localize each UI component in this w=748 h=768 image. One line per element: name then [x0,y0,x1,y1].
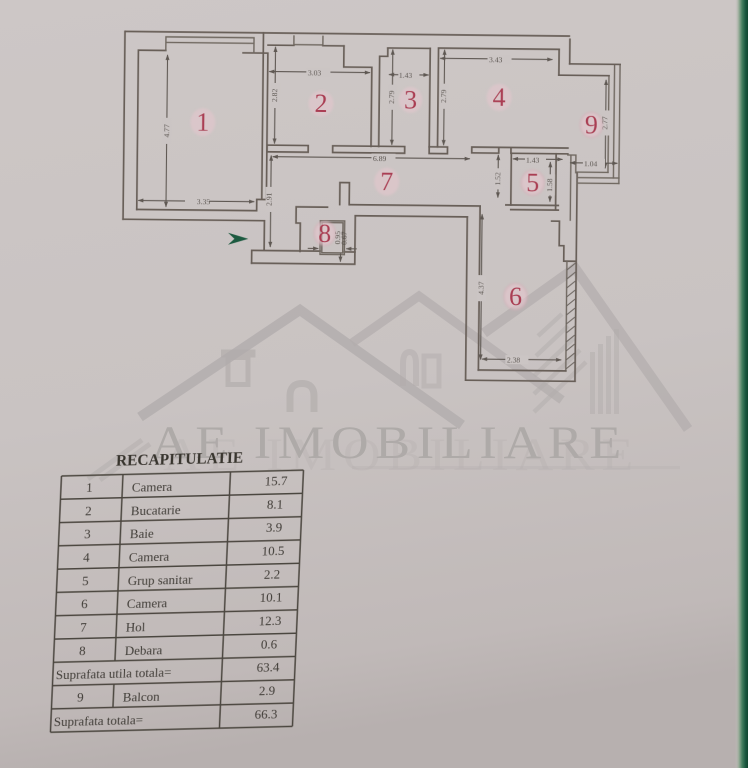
svg-text:1.58: 1.58 [545,178,554,192]
svg-text:2.79: 2.79 [439,89,448,103]
svg-text:1.43: 1.43 [526,156,540,165]
svg-text:2.2: 2.2 [264,566,281,581]
svg-text:Baie: Baie [130,526,155,542]
svg-text:10.5: 10.5 [261,543,284,559]
svg-text:4.77: 4.77 [162,124,171,138]
svg-text:Camera: Camera [129,549,170,565]
svg-text:10.1: 10.1 [259,590,282,606]
svg-text:Suprafata totala=: Suprafata totala= [54,712,144,729]
svg-text:0.6: 0.6 [261,636,278,651]
svg-text:2.82: 2.82 [270,89,279,103]
svg-text:6.89: 6.89 [373,154,387,163]
svg-text:3.43: 3.43 [489,55,503,64]
svg-text:3: 3 [404,85,417,114]
svg-text:12.3: 12.3 [258,613,281,629]
svg-text:2.79: 2.79 [387,90,396,104]
svg-text:4: 4 [83,550,91,565]
svg-text:8: 8 [318,219,331,248]
svg-text:9: 9 [585,110,598,139]
svg-text:5: 5 [526,168,539,197]
svg-text:Hol: Hol [126,619,147,634]
svg-text:3: 3 [84,526,91,541]
svg-text:7: 7 [80,620,88,635]
svg-text:3.03: 3.03 [308,68,322,77]
svg-text:1.43: 1.43 [399,71,413,80]
svg-text:Balcon: Balcon [123,689,161,705]
svg-text:8: 8 [79,643,86,658]
svg-text:1: 1 [86,480,93,495]
svg-text:RECAPITULATIE: RECAPITULATIE [116,450,244,470]
svg-text:2: 2 [85,503,92,518]
svg-text:Bucatarie: Bucatarie [131,502,182,518]
svg-text:3.9: 3.9 [266,520,283,535]
svg-text:1: 1 [196,108,209,137]
svg-text:66.3: 66.3 [254,706,277,722]
svg-text:2.91: 2.91 [265,192,274,206]
svg-text:Camera: Camera [127,595,168,611]
svg-text:2: 2 [314,89,327,118]
svg-text:1.52: 1.52 [493,172,502,186]
svg-text:Grup sanitar: Grup sanitar [128,571,194,588]
svg-text:6: 6 [509,282,522,311]
svg-text:Suprafata utila totala=: Suprafata utila totala= [56,665,172,683]
svg-text:9: 9 [77,689,84,704]
svg-text:7: 7 [380,167,393,196]
svg-text:5: 5 [82,573,89,588]
svg-text:0.67: 0.67 [340,231,349,245]
svg-text:1.04: 1.04 [584,159,598,168]
svg-text:8.1: 8.1 [267,496,284,511]
svg-text:6: 6 [81,596,89,611]
svg-text:4: 4 [492,83,505,112]
svg-text:2.9: 2.9 [259,683,276,698]
svg-text:Debara: Debara [125,642,163,658]
svg-text:3.35: 3.35 [197,197,211,206]
svg-text:Camera: Camera [132,479,173,495]
svg-text:4.37: 4.37 [477,281,486,295]
svg-text:63.4: 63.4 [256,659,280,675]
svg-text:2.38: 2.38 [507,355,521,364]
svg-text:15.7: 15.7 [264,473,288,489]
